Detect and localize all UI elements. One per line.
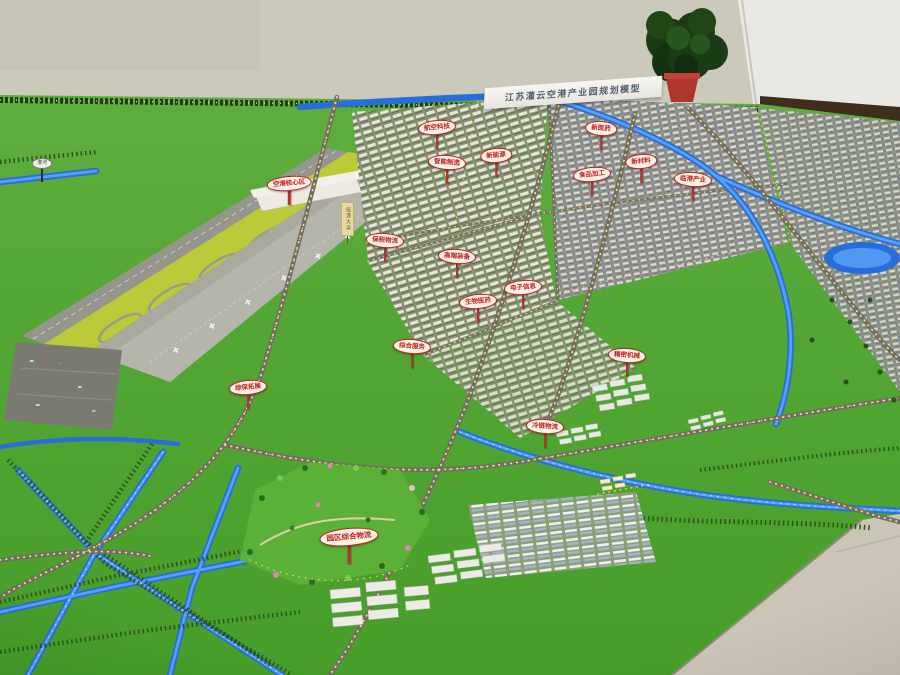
sign-post — [692, 186, 695, 201]
zone-sign-label: 智能制造 — [428, 154, 467, 171]
zone-sign: 高端装备 — [438, 249, 476, 278]
sign-post — [456, 263, 459, 278]
zone-sign-label: 新材料 — [625, 153, 658, 170]
zone-sign: 电子信息 — [504, 280, 542, 309]
sign-post — [522, 294, 525, 309]
sign-post — [544, 433, 547, 448]
sign-post — [600, 135, 603, 150]
zone-sign: 临港产业 — [674, 172, 712, 201]
zone-sign: 新材料 — [625, 154, 657, 183]
sign-post — [626, 362, 629, 377]
zone-sign-label: 电子信息 — [503, 278, 542, 296]
sign-post — [446, 169, 449, 184]
zone-sign-label: 冷链物流 — [526, 418, 565, 435]
zone-sign: 智能制造 — [428, 155, 466, 184]
sign-post — [495, 162, 498, 177]
sign-post — [591, 181, 594, 196]
zone-sign: 新医药 — [585, 121, 617, 150]
zone-sign-label: 保税物流 — [366, 232, 405, 249]
zone-sign-label: 空港核心区 — [266, 174, 312, 192]
sign-post — [436, 134, 439, 149]
sign-post — [411, 353, 414, 368]
zone-sign: 综合服务 — [393, 339, 431, 368]
zone-sign-label: 生物医药 — [458, 292, 497, 310]
model-photo: 江苏灌云空港产业园规划模型 空港核心区 保税物流 航空科技 智能制造 新能源 高… — [0, 0, 900, 675]
sign-post — [288, 190, 291, 205]
zone-sign: 新能源 — [480, 148, 512, 177]
zone-sign: 空港核心区 — [267, 176, 312, 205]
zone-sign-label: 园区综合物流 — [319, 525, 379, 548]
zone-sign-label: 高端装备 — [438, 248, 477, 265]
sign-post — [640, 168, 643, 183]
zone-sign: 航空科技 — [418, 120, 456, 149]
river-sign: 灌河 — [32, 158, 52, 182]
zone-sign-label: 临港产业 — [674, 171, 713, 188]
zone-sign-label: 航空科技 — [417, 118, 456, 136]
zone-sign: 生物医药 — [459, 294, 497, 323]
sign-post — [247, 394, 250, 409]
zone-sign-label: 食品加工 — [572, 165, 611, 183]
zone-sign: 保税物流 — [366, 233, 404, 262]
sign-post — [41, 169, 43, 182]
sign-post — [384, 247, 387, 262]
zone-sign-label: 综保拓展 — [228, 378, 267, 396]
parking-lot — [4, 342, 122, 430]
zone-sign: 精密机械 — [608, 348, 646, 377]
zone-sign: 食品加工 — [573, 167, 611, 196]
model-scene — [0, 0, 900, 675]
river-sign-label: 灌河 — [32, 158, 52, 169]
zone-sign-label: 新能源 — [480, 147, 513, 164]
sign-post — [477, 308, 480, 323]
sign-post — [347, 236, 349, 244]
road-sign-label: 临港大道 — [341, 202, 354, 236]
zone-sign-label: 综合服务 — [393, 338, 432, 355]
zone-sign-label: 新医药 — [585, 120, 617, 137]
zone-sign: 综保拓展 — [229, 380, 267, 409]
road-sign: 临港大道 — [341, 202, 354, 244]
zone-sign: 园区综合物流 — [320, 528, 379, 564]
zone-sign: 冷链物流 — [526, 419, 564, 448]
zone-sign-label: 精密机械 — [608, 347, 647, 364]
sign-post — [348, 545, 351, 564]
